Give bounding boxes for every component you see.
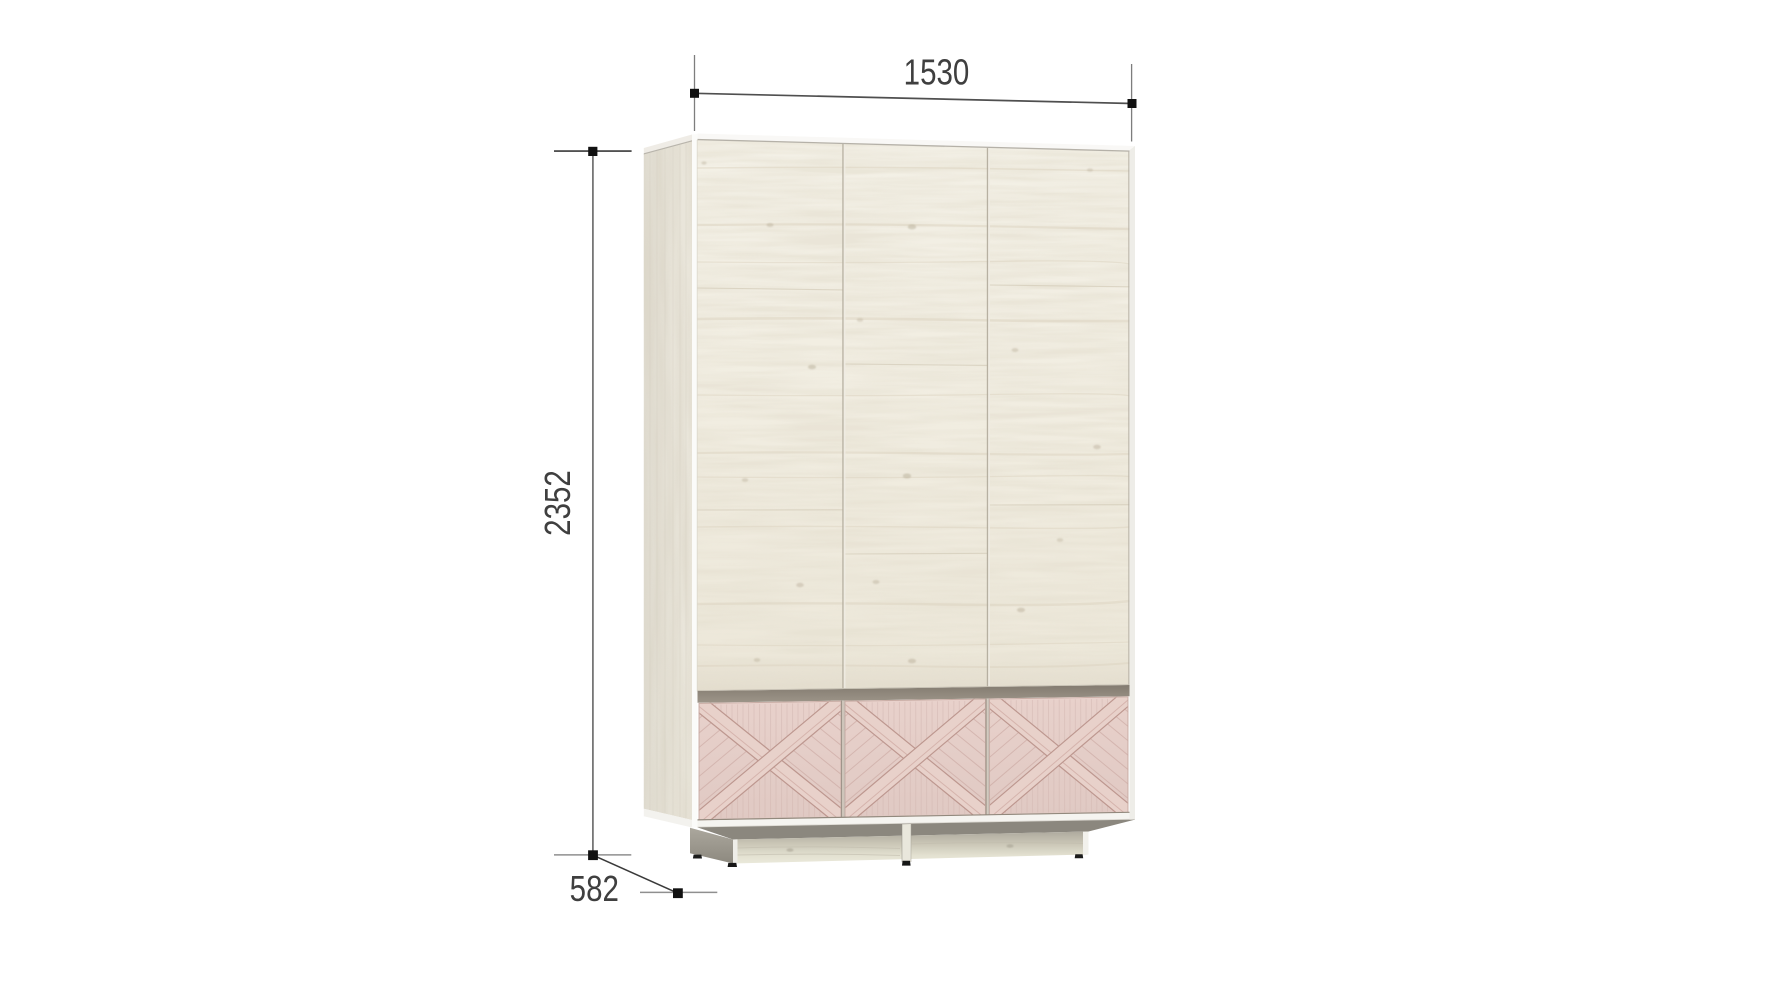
svg-text:2352: 2352 (537, 470, 577, 536)
svg-text:1530: 1530 (904, 51, 970, 91)
svg-text:582: 582 (570, 868, 619, 908)
